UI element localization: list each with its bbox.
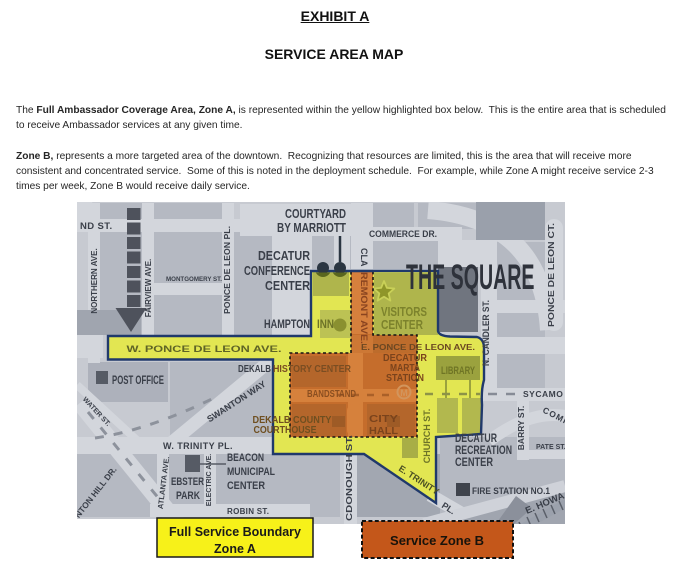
svg-text:DECATUR: DECATUR	[455, 433, 498, 445]
svg-text:W. PONCE DE LEON AVE.: W. PONCE DE LEON AVE.	[127, 344, 282, 354]
svg-text:HALL: HALL	[369, 426, 398, 437]
svg-text:COMMERCE DR.: COMMERCE DR.	[369, 229, 437, 239]
svg-text:CONFERENCE: CONFERENCE	[244, 263, 310, 278]
svg-text:REMONT AVE.: REMONT AVE.	[359, 272, 369, 344]
svg-text:DECATUR: DECATUR	[258, 248, 311, 263]
svg-text:NORTHERN AVE.: NORTHERN AVE.	[90, 248, 99, 313]
svg-text:E. PONCE DE LEON AVE.: E. PONCE DE LEON AVE.	[361, 343, 475, 352]
svg-text:ND ST.: ND ST.	[80, 221, 113, 232]
svg-text:BANDSTAND: BANDSTAND	[307, 389, 356, 400]
svg-text:CENTER: CENTER	[455, 457, 494, 469]
svg-text:VISITORS: VISITORS	[381, 305, 427, 319]
svg-text:DEKALB: DEKALB	[238, 363, 271, 375]
svg-text:EBSTER: EBSTER	[171, 476, 204, 488]
svg-text:PARK: PARK	[176, 490, 200, 502]
svg-text:W. TRINITY PL.: W. TRINITY PL.	[163, 441, 233, 451]
svg-text:INN: INN	[317, 319, 334, 331]
svg-text:POST OFFICE: POST OFFICE	[112, 375, 164, 387]
svg-text:M: M	[400, 388, 408, 398]
svg-text:PATE ST.: PATE ST.	[536, 444, 566, 451]
svg-text:PONCE DE LEON CT.: PONCE DE LEON CT.	[546, 223, 556, 327]
svg-text:CITY: CITY	[369, 414, 398, 425]
svg-text:CHURCH ST.: CHURCH ST.	[422, 409, 432, 464]
svg-text:FAIRVIEW AVE.: FAIRVIEW AVE.	[144, 259, 153, 318]
svg-text:LIBRARY: LIBRARY	[441, 365, 475, 377]
svg-text:CENTER: CENTER	[227, 480, 265, 492]
svg-text:HISTORY CENTER: HISTORY CENTER	[273, 363, 351, 375]
svg-text:Zone A: Zone A	[214, 542, 256, 556]
svg-text:ELECTRIC AVE.: ELECTRIC AVE.	[206, 454, 213, 507]
svg-text:CENTER: CENTER	[381, 318, 423, 332]
svg-text:RECREATION: RECREATION	[455, 445, 512, 457]
svg-text:MUNICIPAL: MUNICIPAL	[227, 466, 275, 478]
svg-text:THE SQUARE: THE SQUARE	[406, 258, 534, 297]
svg-text:CENTER: CENTER	[265, 278, 311, 293]
svg-text:CLA: CLA	[359, 248, 369, 267]
svg-text:PONCE DE LEON PL.: PONCE DE LEON PL.	[222, 226, 232, 314]
svg-text:COURTYARD: COURTYARD	[285, 206, 346, 221]
svg-text:BARRY ST.: BARRY ST.	[516, 406, 526, 450]
svg-text:COURTHOUSE: COURTHOUSE	[254, 425, 317, 436]
svg-text:SYCAMO: SYCAMO	[523, 389, 563, 399]
svg-text:Service Zone B: Service Zone B	[390, 533, 484, 548]
svg-text:BEACON: BEACON	[227, 452, 264, 464]
svg-text:BY MARRIOTT: BY MARRIOTT	[277, 220, 346, 235]
svg-text:CDONOUGH ST.: CDONOUGH ST.	[344, 435, 354, 521]
svg-text:HAMPTON: HAMPTON	[264, 319, 310, 331]
svg-text:MONTGOMERY ST.: MONTGOMERY ST.	[166, 276, 222, 283]
svg-text:N. CANDLER ST.: N. CANDLER ST.	[481, 300, 491, 366]
svg-text:Full Service Boundary: Full Service Boundary	[169, 525, 301, 539]
svg-text:ROBIN ST.: ROBIN ST.	[227, 507, 269, 516]
svg-text:STATION: STATION	[386, 373, 424, 384]
svg-text:FIRE STATION NO.1: FIRE STATION NO.1	[472, 486, 551, 497]
